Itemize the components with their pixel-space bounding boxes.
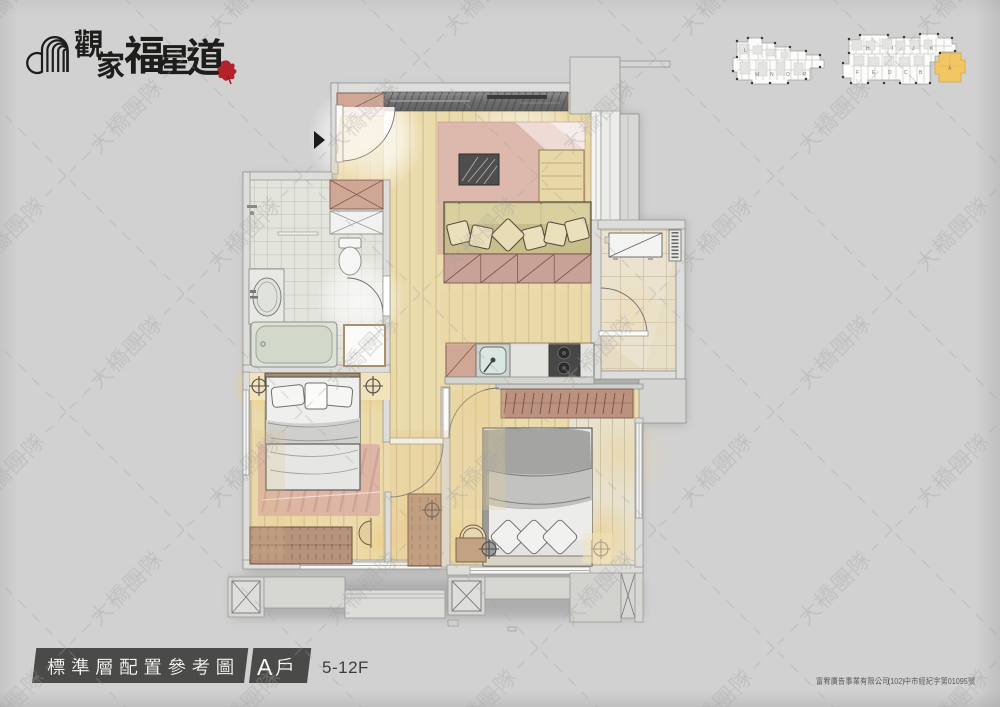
svg-text:M: M — [755, 72, 759, 78]
svg-text:F: F — [856, 70, 859, 76]
svg-text:A: A — [257, 654, 273, 680]
svg-text:L: L — [744, 48, 747, 54]
svg-text:N: N — [770, 72, 774, 78]
svg-text:H: H — [866, 46, 870, 52]
svg-text:C: C — [904, 70, 908, 76]
svg-text:O: O — [786, 72, 790, 78]
svg-text:01095: 01095 — [948, 676, 969, 686]
svg-text:(102): (102) — [888, 676, 905, 686]
svg-text:I: I — [892, 46, 893, 52]
svg-text:D: D — [888, 70, 892, 76]
